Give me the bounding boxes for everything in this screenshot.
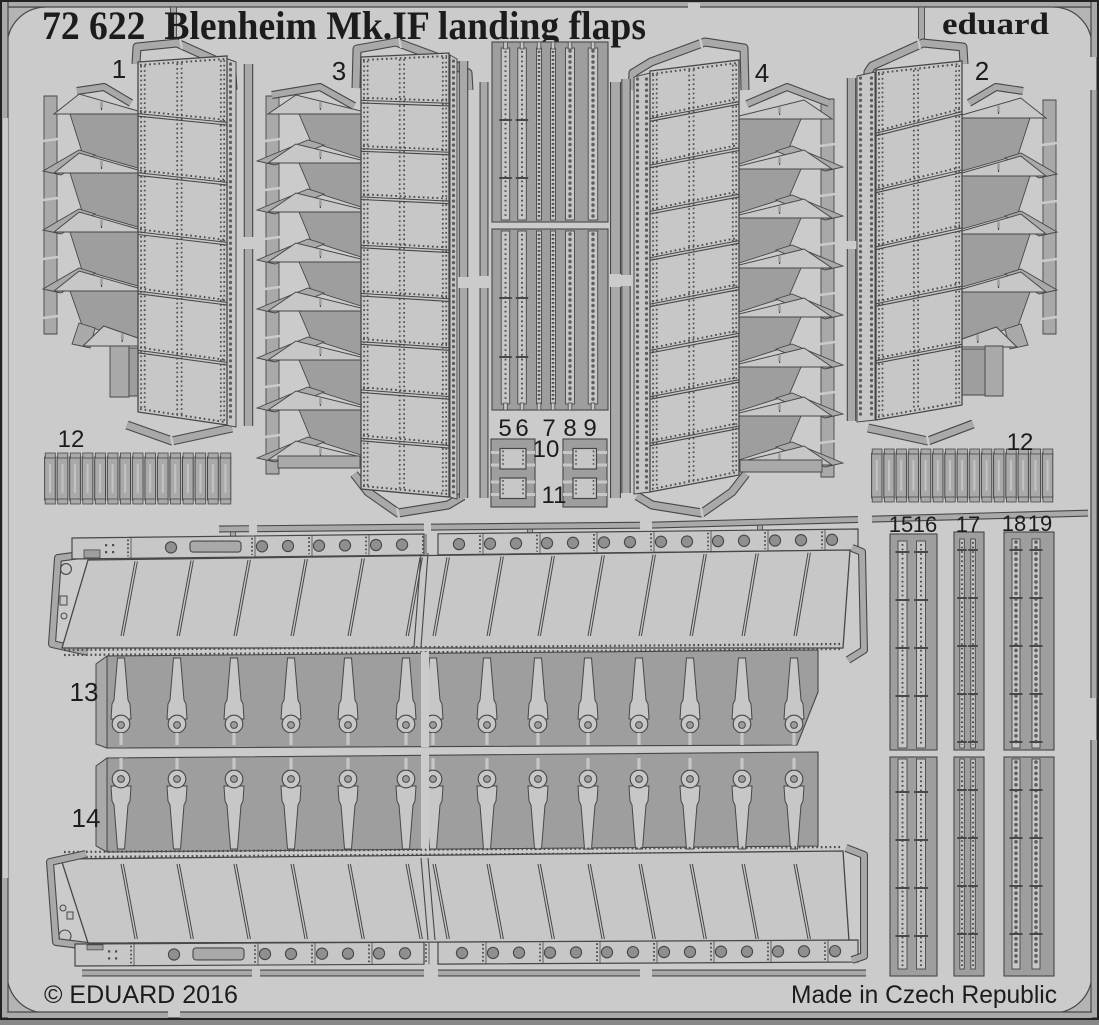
svg-text:17: 17 [956, 512, 980, 537]
svg-text:10: 10 [533, 436, 560, 463]
svg-text:6: 6 [515, 415, 528, 442]
svg-text:1: 1 [112, 54, 126, 84]
svg-text:3: 3 [332, 56, 346, 86]
svg-text:9: 9 [583, 415, 596, 442]
svg-text:72 622 Blenheim Mk.IF landing: 72 622 Blenheim Mk.IF landing flaps [42, 3, 646, 48]
svg-text:12: 12 [1007, 429, 1034, 456]
svg-text:14: 14 [72, 803, 101, 833]
svg-text:eduard: eduard [942, 6, 1049, 41]
svg-text:18: 18 [1002, 511, 1026, 536]
svg-text:© EDUARD 2016: © EDUARD 2016 [44, 981, 238, 1009]
svg-text:11: 11 [542, 482, 567, 509]
svg-text:19: 19 [1028, 511, 1052, 536]
svg-text:2: 2 [975, 56, 989, 86]
svg-text:5: 5 [498, 415, 511, 442]
svg-text:13: 13 [70, 677, 99, 707]
svg-text:16: 16 [913, 512, 937, 537]
svg-text:Made in Czech Republic: Made in Czech Republic [791, 981, 1057, 1009]
svg-text:8: 8 [563, 415, 576, 442]
svg-text:4: 4 [755, 58, 769, 88]
svg-text:12: 12 [58, 426, 85, 453]
svg-text:15: 15 [889, 512, 913, 537]
